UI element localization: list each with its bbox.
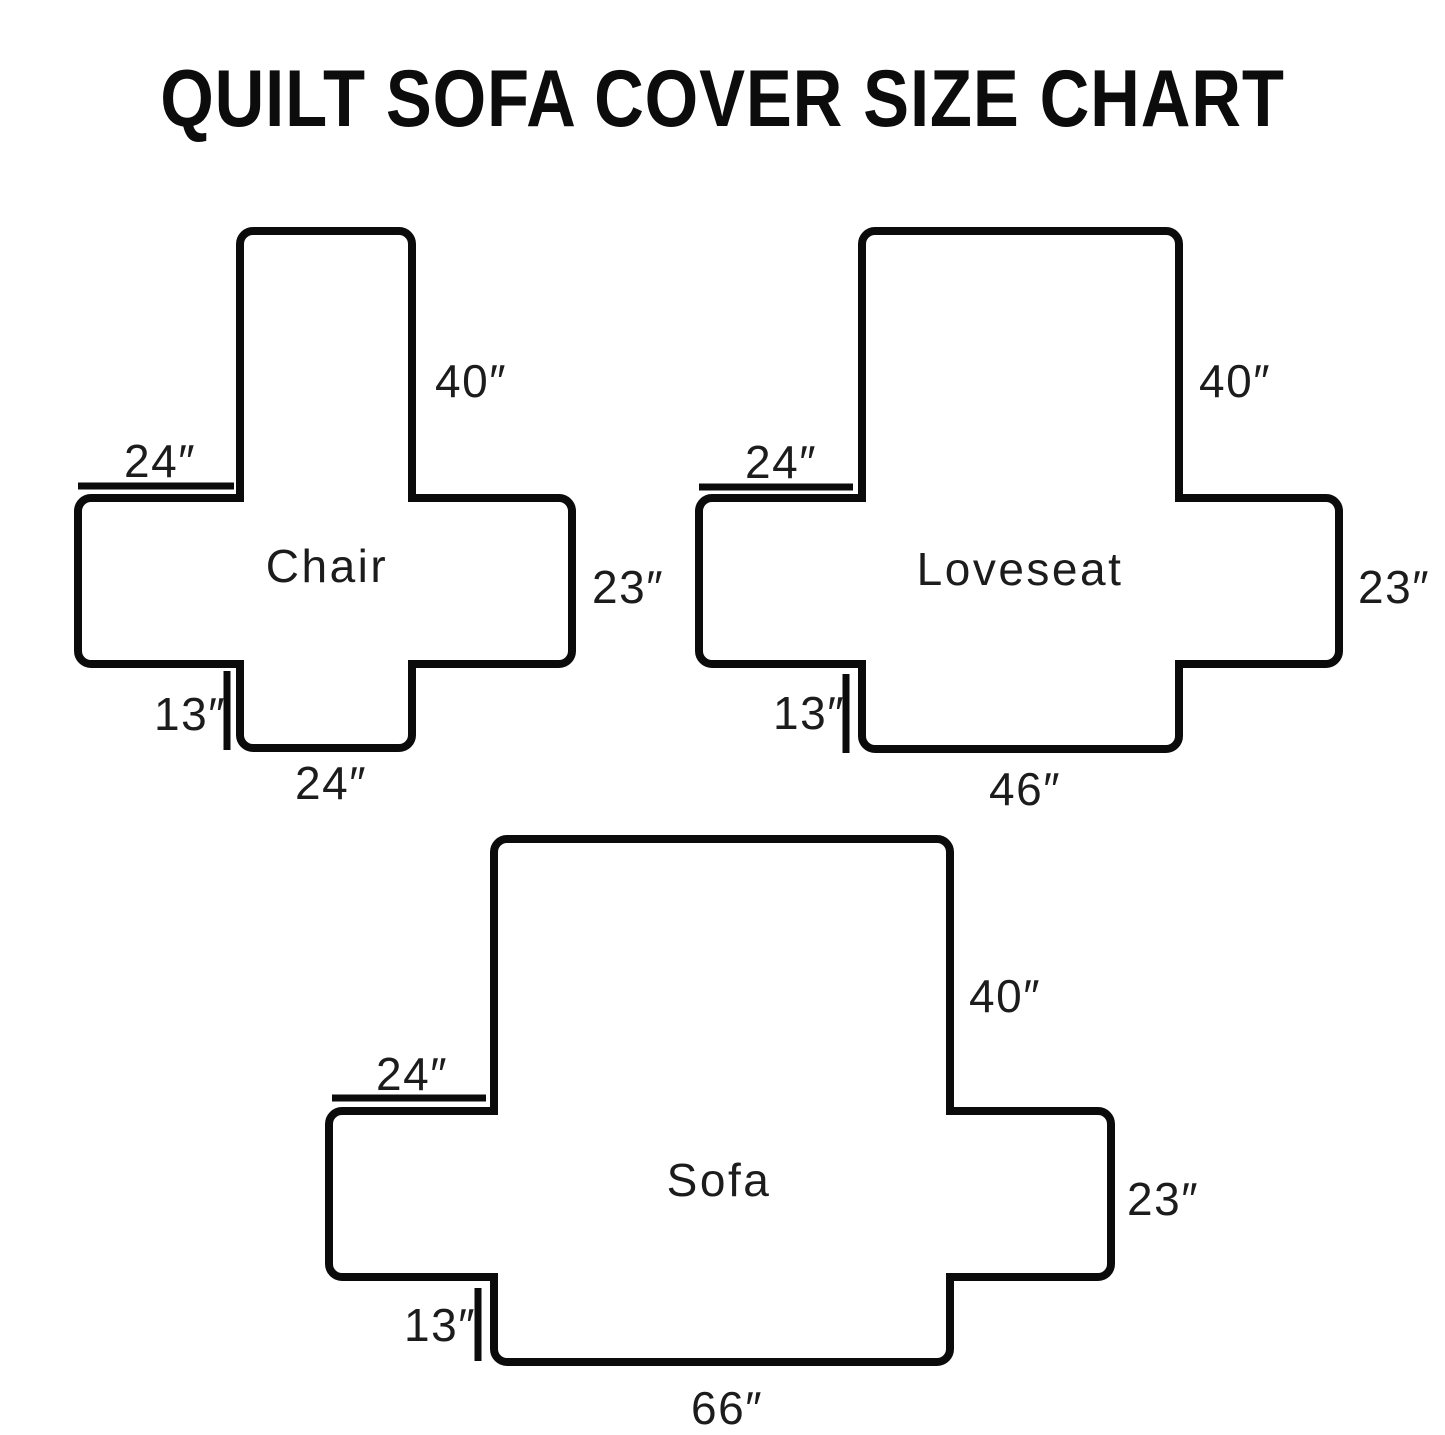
loveseat-front-skirt-label: 13″ bbox=[773, 686, 845, 740]
size-chart-page: QUILT SOFA COVER SIZE CHART 40″ 24″ Chai… bbox=[0, 0, 1445, 1435]
chair-back-height-label: 40″ bbox=[435, 354, 507, 408]
chair-seat-width-label: 24″ bbox=[295, 756, 367, 810]
sofa-seat-width-label: 66″ bbox=[691, 1381, 763, 1435]
loveseat-seat-width-label: 46″ bbox=[989, 762, 1061, 816]
loveseat-name-label: Loveseat bbox=[917, 542, 1124, 596]
loveseat-back-height-label: 40″ bbox=[1199, 354, 1271, 408]
chair-arm-width-label: 24″ bbox=[124, 434, 196, 488]
chair-side-depth-label: 23″ bbox=[592, 560, 664, 614]
loveseat-side-depth-label: 23″ bbox=[1358, 560, 1430, 614]
chair-front-skirt-label: 13″ bbox=[154, 687, 226, 741]
sofa-arm-width-label: 24″ bbox=[376, 1047, 448, 1101]
sofa-back-height-label: 40″ bbox=[969, 969, 1041, 1023]
sofa-side-depth-label: 23″ bbox=[1127, 1172, 1199, 1226]
sofa-name-label: Sofa bbox=[667, 1153, 772, 1207]
loveseat-arm-width-label: 24″ bbox=[745, 435, 817, 489]
sofa-front-skirt-label: 13″ bbox=[404, 1298, 476, 1352]
chair-name-label: Chair bbox=[266, 539, 388, 593]
